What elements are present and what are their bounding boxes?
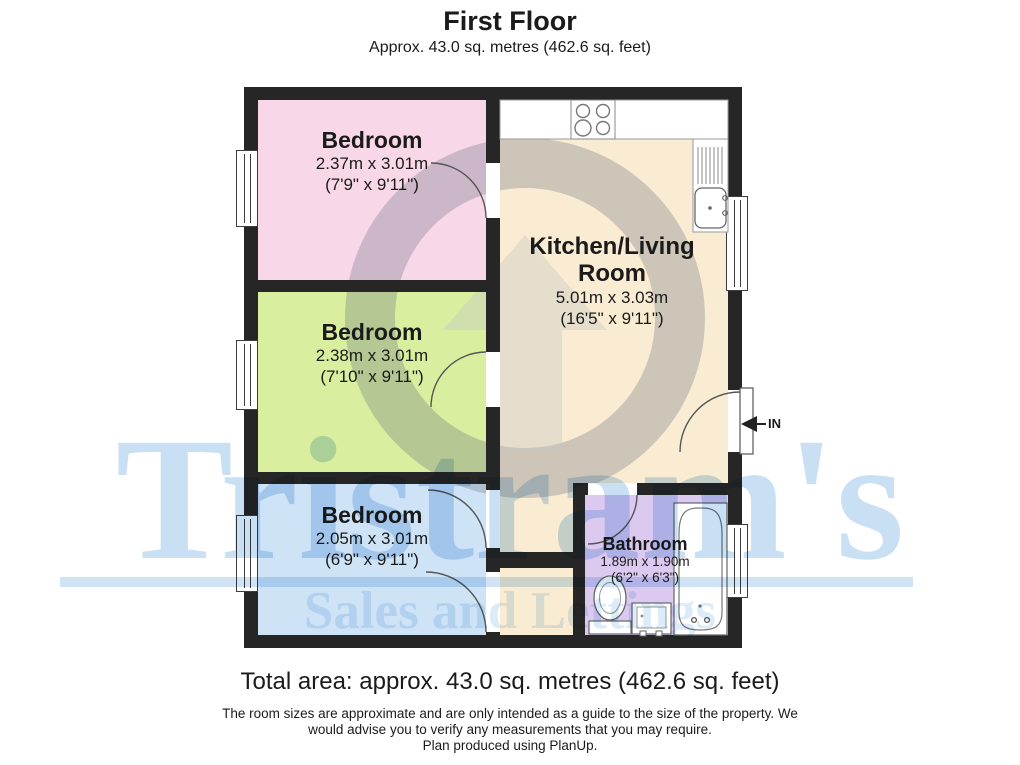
room-dim-metric: 2.37m x 3.01m bbox=[262, 153, 482, 174]
floor-plan-page: First Floor Approx. 43.0 sq. metres (462… bbox=[0, 0, 1020, 765]
room-name-line2: Room bbox=[502, 260, 722, 287]
fixtures-layer bbox=[0, 0, 1020, 765]
room-name-line1: Kitchen/Living bbox=[502, 233, 722, 260]
disclaimer-line1: The room sizes are approximate and are o… bbox=[0, 706, 1020, 723]
page-title: First Floor bbox=[0, 6, 1020, 37]
hob-icon bbox=[571, 100, 615, 139]
watermark-tagline: Sales and Lettings bbox=[0, 585, 1020, 638]
watermark-agency-name: Tristram's bbox=[0, 412, 1020, 588]
produced-by-text: Plan produced using PlanUp. bbox=[0, 738, 1020, 755]
disclaimer-line2: would advise you to verify any measureme… bbox=[0, 722, 1020, 739]
label-bedroom-1: Bedroom 2.37m x 3.01m (7'9" x 9'11") bbox=[262, 127, 482, 195]
room-name: Bedroom bbox=[262, 127, 482, 153]
room-dim-metric: 2.38m x 3.01m bbox=[262, 345, 482, 366]
label-bedroom-2: Bedroom 2.38m x 3.01m (7'10" x 9'11") bbox=[262, 319, 482, 387]
label-kitchen-living: Kitchen/Living Room 5.01m x 3.03m (16'5"… bbox=[502, 233, 722, 329]
room-dim-imperial: (7'10" x 9'11") bbox=[262, 366, 482, 387]
room-name: Bedroom bbox=[262, 319, 482, 345]
room-dim-imperial: (7'9" x 9'11") bbox=[262, 174, 482, 195]
total-area-text: Total area: approx. 43.0 sq. metres (462… bbox=[0, 668, 1020, 696]
page-subtitle: Approx. 43.0 sq. metres (462.6 sq. feet) bbox=[0, 39, 1020, 57]
room-dim-metric: 5.01m x 3.03m bbox=[502, 287, 722, 308]
room-dim-imperial: (16'5" x 9'11") bbox=[502, 308, 722, 329]
sink-icon bbox=[693, 139, 728, 232]
